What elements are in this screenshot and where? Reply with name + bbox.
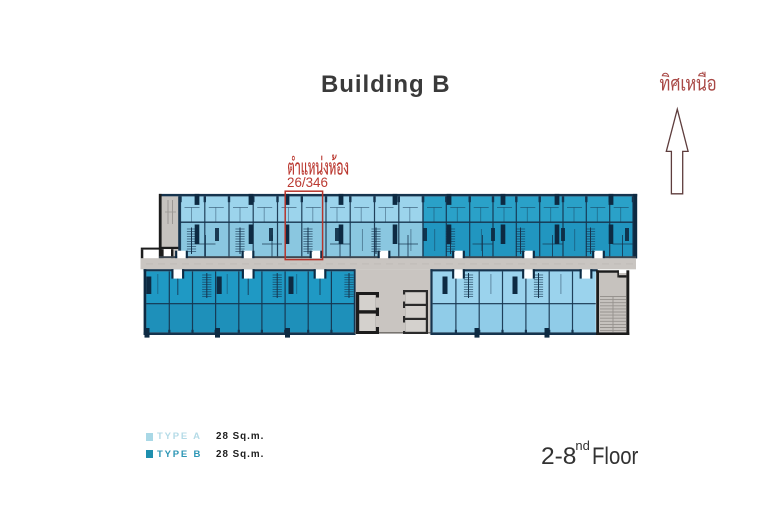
svg-text:26/346: 26/346 (287, 175, 328, 190)
